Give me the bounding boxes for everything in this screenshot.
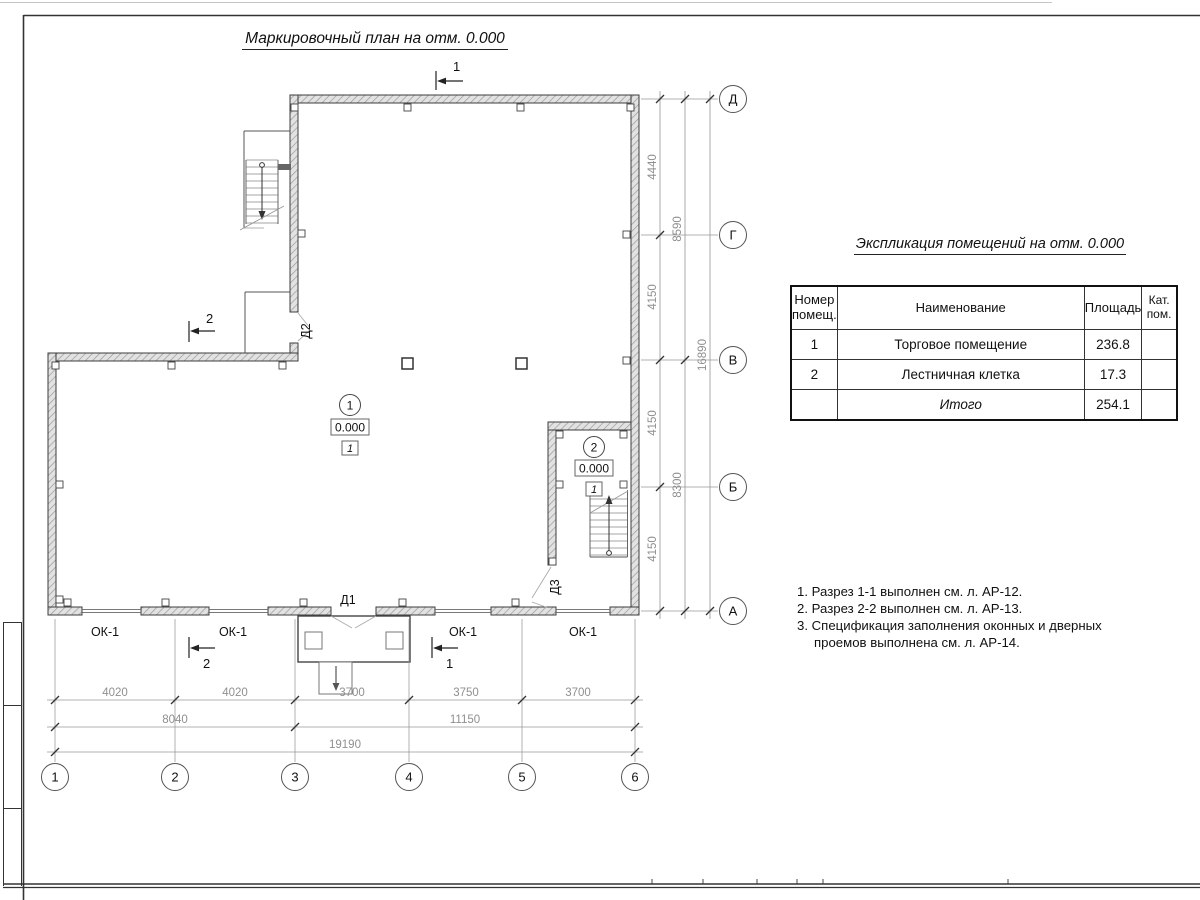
room-category-cell: [1142, 330, 1177, 360]
header-room-number: Номер помещ.: [791, 286, 837, 330]
dim-11150: 11150: [450, 714, 480, 726]
room-2-floor-mark: 1: [591, 484, 597, 496]
section-marks: 1 2 2 1: [189, 59, 463, 671]
total-area: 254.1: [1084, 390, 1142, 421]
dim-3750: 3750: [453, 687, 479, 699]
room-2-number: 2: [591, 441, 598, 455]
section-2-left: 2: [206, 311, 213, 326]
axis-5: 5: [518, 770, 525, 785]
note-1: 1. Разрез 1-1 выполнен см. л. АР-12.: [797, 583, 1132, 600]
door-label-d2: Д2: [299, 323, 313, 338]
room-category-cell: [1142, 360, 1177, 390]
dim-8590: 8590: [672, 216, 684, 242]
dim-8040: 8040: [162, 714, 188, 726]
axis-6: 6: [631, 770, 638, 785]
dim-4150-a: 4150: [647, 284, 659, 310]
section-arrow-left: [190, 328, 199, 335]
dim-3700-a: 3700: [339, 687, 365, 699]
axis-a: А: [729, 604, 738, 619]
dim-4150-b: 4150: [647, 410, 659, 436]
door-swings: [298, 313, 551, 628]
dim-4020-b: 4020: [222, 687, 248, 699]
door-label-d3: Д3: [548, 579, 562, 594]
plan-title: Маркировочный план на отм. 0.000: [200, 30, 550, 48]
note-3: 3. Спецификация заполнения оконных и две…: [797, 617, 1132, 651]
section-1-bottom: 1: [446, 656, 453, 671]
notes-list: 1. Разрез 1-1 выполнен см. л. АР-12. 2. …: [797, 583, 1132, 651]
walls: [48, 95, 639, 615]
wall-left: [48, 353, 56, 615]
header-area: Площадь: [1084, 286, 1142, 330]
window-label-4: ОК-1: [569, 625, 597, 639]
dim-4020-a: 4020: [102, 687, 128, 699]
d2-landing: [245, 292, 290, 353]
dim-8300: 8300: [672, 472, 684, 498]
header-category: Кат. пом.: [1142, 286, 1177, 330]
axis-b: Б: [729, 480, 738, 495]
total-label: Итого: [837, 390, 1084, 421]
axis-1: 1: [51, 770, 58, 785]
room-markers: 1 0.000 1 2 0.000 1: [331, 395, 613, 497]
window-label-2: ОК-1: [219, 625, 247, 639]
stairwell-stair: [590, 490, 628, 557]
wall-right: [631, 95, 639, 615]
door-label-d1: Д1: [340, 593, 355, 607]
section-1-top: 1: [453, 59, 460, 74]
floor-plan-drawing: 4020 4020 3700 3750 3700 8040 11150 1919…: [0, 0, 1200, 900]
stair-up-arrow: [606, 495, 613, 504]
axis-markers: Д Г В Б А 1 2 3 4 5 6: [42, 86, 747, 791]
room-number-cell: 1: [791, 330, 837, 360]
section-arrow-bottom-right: [433, 645, 442, 652]
exterior-stair: [240, 131, 291, 230]
note-2: 2. Разрез 2-2 выполнен см. л. АР-13.: [797, 600, 1132, 617]
dim-19190: 19190: [329, 739, 361, 751]
opening-labels: ОК-1 ОК-1 ОК-1 ОК-1 Д1 Д2 Д3: [91, 323, 597, 639]
table-total-row: Итого 254.1: [791, 390, 1177, 421]
axis-d: Д: [729, 92, 738, 107]
explication-table: Номер помещ. Наименование Площадь Кат. п…: [790, 285, 1178, 421]
axis-3: 3: [291, 770, 298, 785]
axis-v: В: [729, 353, 738, 368]
header-name: Наименование: [837, 286, 1084, 330]
wall-stair-left: [548, 430, 556, 565]
axis-4: 4: [405, 770, 412, 785]
room-1-number: 1: [347, 399, 354, 413]
table-header-row: Номер помещ. Наименование Площадь Кат. п…: [791, 286, 1177, 330]
room-1-elevation: 0.000: [335, 421, 365, 435]
room-1-floor-mark: 1: [347, 443, 353, 455]
axis-g: Г: [729, 228, 736, 243]
window-label-3: ОК-1: [449, 625, 477, 639]
dim-4150-c: 4150: [647, 536, 659, 562]
table-row: 1 Торговое помещение 236.8: [791, 330, 1177, 360]
section-2-bottom: 2: [203, 656, 210, 671]
axis-2: 2: [171, 770, 178, 785]
wall-top: [290, 95, 639, 103]
explication-title: Экспликация помещений на отм. 0.000: [815, 236, 1165, 252]
room-2-elevation: 0.000: [579, 462, 609, 476]
room-name-cell: Торговое помещение: [837, 330, 1084, 360]
room-number-cell: 2: [791, 360, 837, 390]
wall-upper-left: [290, 95, 298, 312]
room-area-cell: 17.3: [1084, 360, 1142, 390]
columns: [402, 358, 527, 369]
entrance-porch: [298, 616, 410, 694]
room-name-cell: Лестничная клетка: [837, 360, 1084, 390]
table-row: 2 Лестничная клетка 17.3: [791, 360, 1177, 390]
window-label-1: ОК-1: [91, 625, 119, 639]
dim-3700-b: 3700: [565, 687, 591, 699]
wall-wing-top: [48, 353, 298, 361]
section-arrow-bottom-left: [190, 645, 199, 652]
wall-stair-top: [548, 422, 631, 430]
dim-4440: 4440: [647, 154, 659, 180]
dim-16890: 16890: [697, 339, 709, 371]
room-area-cell: 236.8: [1084, 330, 1142, 360]
section-arrow-top: [437, 78, 446, 85]
stair-down-arrow: [259, 211, 266, 220]
